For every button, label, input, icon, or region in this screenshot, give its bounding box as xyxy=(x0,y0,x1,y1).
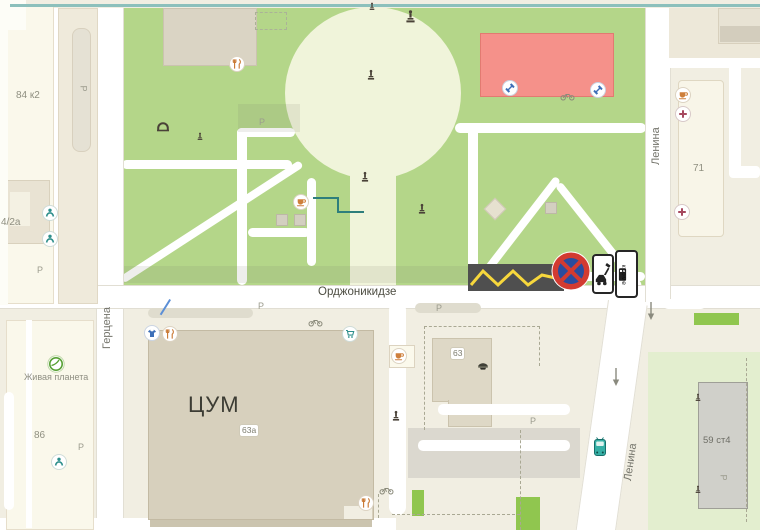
building-label-84k2: 84 к2 xyxy=(16,90,40,101)
address-badge-63[interactable]: 63 xyxy=(450,347,465,360)
street-label-gertsena: Герцена xyxy=(101,307,113,349)
construction-outline xyxy=(255,12,287,30)
monument-icon xyxy=(368,2,376,11)
map-canvas[interactable]: кроме РРРРРРРР 84 к2 4/2а 86 Живая плане… xyxy=(0,0,760,530)
no-stopping-sign[interactable] xyxy=(551,251,591,291)
building-top-right-inner xyxy=(720,26,760,42)
statue-icon xyxy=(404,9,417,25)
monument-icon xyxy=(366,69,376,81)
lawn xyxy=(412,490,424,516)
park-plaza-circle xyxy=(285,7,461,179)
parking-label: Р xyxy=(258,302,264,311)
monument-icon xyxy=(417,203,427,215)
fence xyxy=(378,494,379,518)
building-label-86: 86 xyxy=(34,430,45,441)
bicycle-parking-icon xyxy=(560,92,575,101)
poi-label-zhivaya-planeta[interactable]: Живая планета xyxy=(24,372,88,382)
bicycle-parking-icon xyxy=(379,486,394,495)
park-path xyxy=(248,228,310,237)
address-badge-63a[interactable]: 63а xyxy=(239,424,259,437)
park-pavilion xyxy=(276,214,288,226)
planet-icon[interactable] xyxy=(47,355,65,373)
cafe-icon[interactable] xyxy=(675,87,691,103)
building-shadow xyxy=(150,520,372,527)
building-label-59st4: 59 ст4 xyxy=(703,435,731,446)
bus-icon[interactable] xyxy=(592,436,608,458)
building-label-4-2a: 4/2а xyxy=(1,217,20,228)
one-way-arrow-icon xyxy=(611,366,621,388)
fence xyxy=(520,430,521,530)
fence xyxy=(424,326,425,430)
monument-icon xyxy=(360,171,370,183)
building-84k2[interactable] xyxy=(6,6,54,304)
park-path xyxy=(468,123,478,285)
pedestrian-walkway xyxy=(389,302,406,515)
monument-icon xyxy=(196,132,204,141)
parking-label: Р xyxy=(530,417,536,426)
restaurant-icon[interactable] xyxy=(229,56,245,72)
parking-label: Р xyxy=(719,474,728,480)
cafe-icon[interactable] xyxy=(293,194,309,210)
parking-label: Р xyxy=(259,118,265,127)
road-divider xyxy=(26,320,32,528)
cart-icon[interactable] xyxy=(342,326,358,342)
monument-icon xyxy=(391,410,401,422)
fence xyxy=(424,326,540,327)
street-label-ordzhonikidze: Орджоникидзе xyxy=(318,286,396,298)
police-icon[interactable] xyxy=(476,361,490,372)
street-label-lenina-top: Ленина xyxy=(650,127,662,165)
road-courtyard xyxy=(729,64,741,172)
park-pavilion xyxy=(545,202,557,214)
parking-lane xyxy=(4,392,14,510)
store-icon[interactable] xyxy=(144,325,160,341)
medical-icon[interactable] xyxy=(674,204,690,220)
bus-stop-road xyxy=(468,264,564,291)
cafe-icon[interactable] xyxy=(391,348,407,364)
building-label-71: 71 xyxy=(693,163,704,174)
district-boundary-line xyxy=(10,4,760,7)
stairs-line xyxy=(337,211,364,213)
fence xyxy=(539,326,540,366)
building-86[interactable] xyxy=(6,320,94,530)
road-courtyard xyxy=(729,166,760,178)
park-path xyxy=(307,178,316,266)
road-gertsena xyxy=(96,8,124,530)
parking-label: Р xyxy=(436,304,442,313)
road-side xyxy=(669,58,760,68)
parking-strip xyxy=(415,303,481,313)
except-route-transport-sign[interactable]: кроме xyxy=(615,250,638,298)
parking-lane xyxy=(663,299,706,309)
one-way-arrow-icon xyxy=(646,300,656,322)
park-pavilion xyxy=(294,214,306,226)
stairs-line xyxy=(313,197,339,199)
fence xyxy=(746,358,747,522)
fitness-icon[interactable] xyxy=(590,82,606,98)
lawn xyxy=(694,313,739,325)
fence xyxy=(392,514,520,515)
parking-label: Р xyxy=(79,85,88,91)
parking-row xyxy=(438,404,570,415)
park-path xyxy=(122,160,292,169)
person-icon[interactable] xyxy=(51,454,67,470)
park-terrace xyxy=(122,266,472,283)
person-icon[interactable] xyxy=(42,205,58,221)
tow-away-sign[interactable] xyxy=(592,254,614,294)
building-label-tsum[interactable]: ЦУМ xyxy=(188,392,240,418)
monument-icon xyxy=(694,393,702,402)
parking-row xyxy=(418,440,570,451)
fitness-icon[interactable] xyxy=(502,80,518,96)
parking-label: Р xyxy=(37,266,43,275)
restaurant-icon[interactable] xyxy=(162,326,178,342)
restaurant-icon[interactable] xyxy=(358,495,374,511)
parking-label: Р xyxy=(78,443,84,452)
building-tsum[interactable] xyxy=(148,330,374,520)
sign-text: кроме xyxy=(620,265,627,286)
map-edge xyxy=(0,0,8,305)
bench-icon xyxy=(155,121,171,134)
monument-icon xyxy=(694,485,702,494)
road-lenina-bottom xyxy=(574,300,648,530)
parking-lot xyxy=(408,428,580,478)
park-terrace xyxy=(238,104,300,132)
medical-icon[interactable] xyxy=(675,106,691,122)
bicycle-parking-icon xyxy=(308,318,323,327)
bus-stop-marking xyxy=(468,264,564,291)
park-path xyxy=(455,123,646,133)
person-icon[interactable] xyxy=(42,231,58,247)
